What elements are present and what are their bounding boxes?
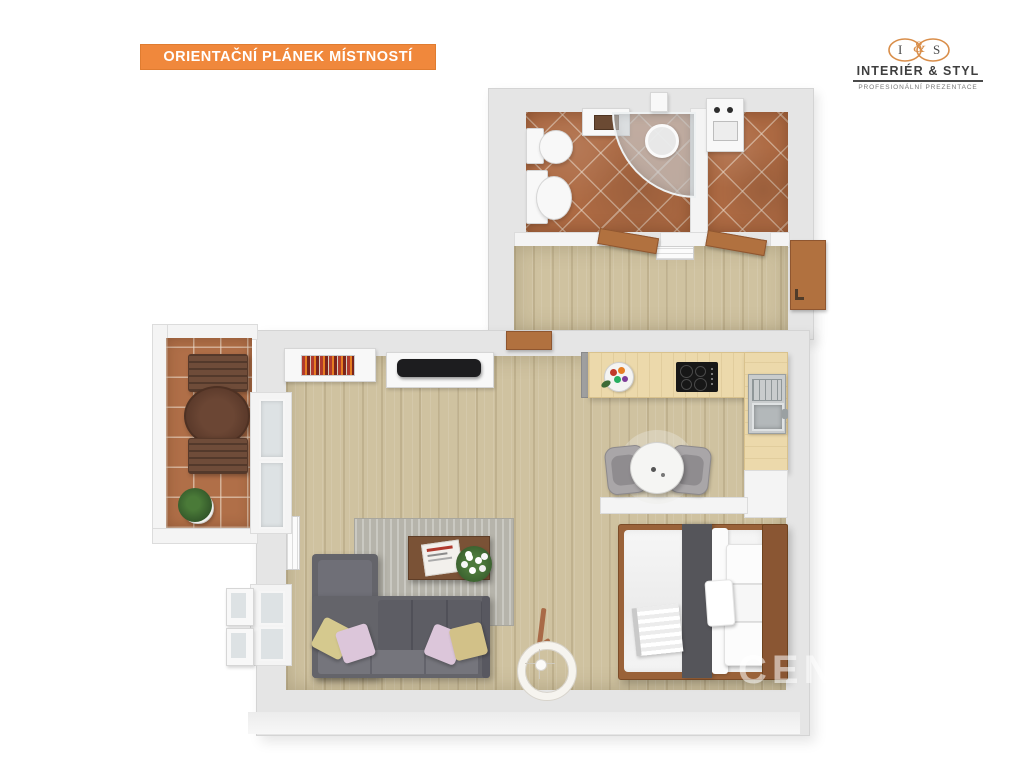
dish-drainer: [752, 379, 782, 401]
washer-knob: [727, 107, 733, 113]
fruit: [622, 376, 628, 382]
kitchen-end-wall: [744, 470, 788, 518]
fruit: [610, 369, 617, 376]
shower-head: [645, 124, 679, 158]
fruit: [614, 376, 621, 383]
logo: I & S INTERIÉR & STYL PROFESIONÁLNÍ PREZ…: [853, 36, 983, 94]
sink-bowl: [752, 403, 784, 431]
washing-machine: [706, 98, 744, 152]
washer-knob: [714, 107, 720, 113]
logo-letter-i: I: [898, 42, 902, 58]
entrance-door: [790, 240, 826, 310]
burner: [681, 379, 692, 390]
opened-window-sash: [226, 588, 254, 626]
table-decor: [661, 473, 665, 477]
sink-faucet: [782, 409, 788, 419]
outer-wall-apron: [248, 712, 800, 734]
sash-glass: [231, 633, 246, 658]
books: [301, 355, 355, 376]
window-glass: [259, 591, 285, 625]
washer-lid: [713, 121, 738, 141]
magazine-text: [427, 552, 447, 557]
hallway-radiator: [656, 246, 694, 260]
floor-lamp-shade: [518, 642, 576, 700]
balcony-door-glass: [259, 461, 285, 529]
bookshelf: [284, 348, 376, 382]
watermark: CENT: [738, 648, 867, 693]
tv-board: [386, 352, 494, 388]
tv: [397, 359, 481, 377]
balcony-bench: [188, 438, 248, 474]
dining-table: [630, 442, 684, 494]
window-frame: [250, 584, 292, 666]
flower-bouquet: [456, 546, 492, 582]
potted-plant: [178, 488, 212, 522]
flower-blossoms: [466, 554, 473, 561]
burner: [694, 378, 707, 391]
burner: [695, 366, 706, 377]
bathroom-sink-bowl: [536, 176, 572, 220]
bed-accent-pillow: [704, 579, 735, 627]
opened-window-sash: [226, 628, 254, 666]
door-handle-icon: [795, 297, 804, 300]
balcony-bottom-wall: [152, 528, 258, 544]
cooktop-controls: [711, 368, 713, 370]
fruit-bowl: [604, 362, 634, 392]
kitchen-sink-unit: [748, 374, 786, 434]
magazine-cover: [427, 545, 453, 552]
balcony-door-frame: [250, 392, 292, 534]
burner: [680, 365, 693, 378]
shower-faucet: [650, 92, 668, 112]
table-decor: [651, 467, 656, 472]
fruit: [618, 367, 625, 374]
logo-subtitle: PROFESIONÁLNÍ PREZENTACE: [853, 84, 983, 91]
lamp-bulb: [535, 659, 547, 671]
hallway-door-sill: [506, 331, 552, 350]
hallway-floor: [514, 246, 788, 330]
bed-blanket: [632, 604, 684, 657]
logo-ampersand: &: [913, 39, 925, 57]
balcony-table: [184, 386, 250, 446]
infinity-monogram-icon: I & S: [881, 36, 957, 64]
cooktop: [676, 362, 718, 392]
balcony-door-glass: [259, 399, 285, 459]
logo-letter-s: S: [933, 42, 940, 58]
floorplan-page: ORIENTAČNÍ PLÁNEK MÍSTNOSTÍ I & S INTERI…: [0, 0, 1024, 768]
logo-title: INTERIÉR & STYL: [853, 64, 983, 82]
toilet-bowl: [539, 130, 573, 164]
title-banner-label: ORIENTAČNÍ PLÁNEK MÍSTNOSTÍ: [163, 49, 412, 65]
magazine-text: [428, 557, 452, 562]
title-banner: ORIENTAČNÍ PLÁNEK MÍSTNOSTÍ: [140, 44, 436, 70]
sash-glass: [231, 593, 246, 618]
window-glass: [259, 627, 285, 661]
